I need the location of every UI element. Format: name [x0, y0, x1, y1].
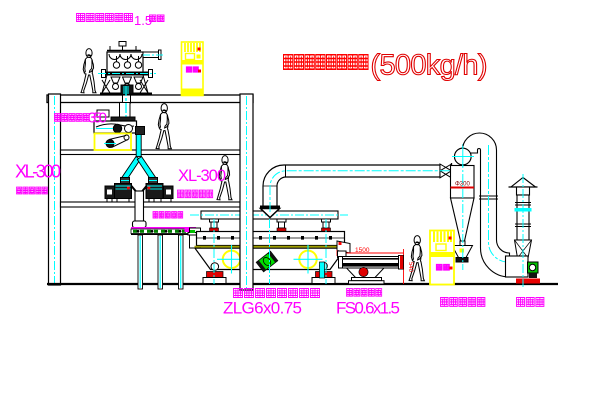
svg-text:350: 350 [88, 110, 107, 127]
svg-text:XL-300: XL-300 [178, 167, 226, 185]
svg-text:540: 540 [407, 262, 413, 273]
svg-text:XL-300: XL-300 [15, 162, 61, 182]
svg-text:ZLG6x0.75: ZLG6x0.75 [223, 299, 302, 318]
svg-text:(500kg/h): (500kg/h) [371, 50, 488, 82]
svg-text:FS0.6x1.5: FS0.6x1.5 [336, 299, 400, 318]
svg-text:1500: 1500 [355, 247, 370, 254]
